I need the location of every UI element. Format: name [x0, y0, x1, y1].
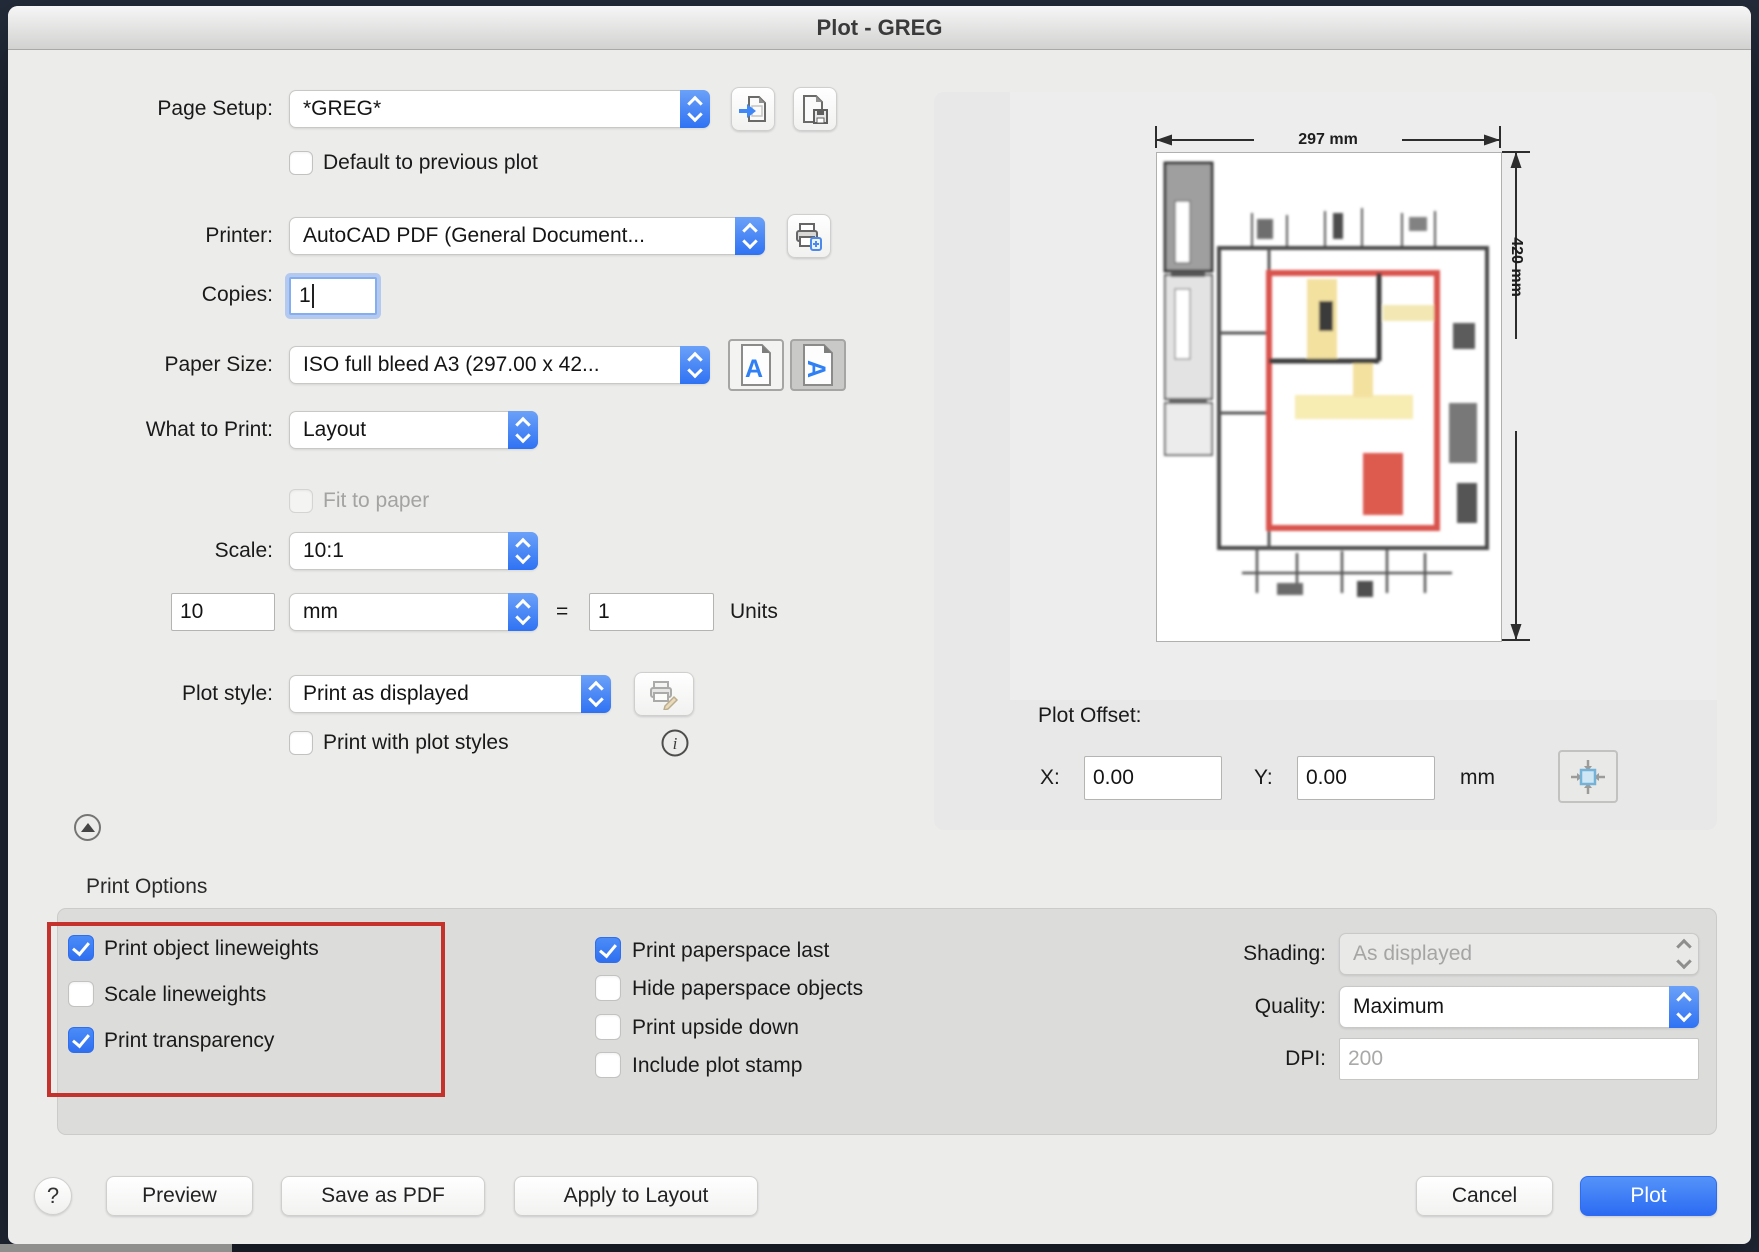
stepper-icon	[508, 532, 538, 570]
dpi-label: DPI:	[1100, 1046, 1326, 1072]
title-bar[interactable]: Plot - GREG	[8, 6, 1751, 50]
units-label: Units	[730, 599, 778, 625]
svg-text:A: A	[802, 360, 830, 378]
print-with-plot-styles-label: Print with plot styles	[323, 730, 509, 756]
fit-to-paper-label: Fit to paper	[323, 488, 429, 514]
offset-x-label: X:	[1040, 765, 1060, 791]
paper-width-dimension: 297 mm	[1258, 130, 1398, 150]
stepper-icon	[581, 675, 611, 713]
plot-offset-label: Plot Offset:	[1038, 703, 1142, 729]
annotation-highlight-box	[47, 922, 445, 1097]
shading-select[interactable]: As displayed	[1339, 933, 1699, 975]
apply-to-layout-button[interactable]: Apply to Layout	[514, 1176, 758, 1216]
plot-style-editor-icon	[648, 678, 680, 710]
save-page-setup-icon	[799, 93, 831, 125]
what-to-print-select[interactable]: Layout	[289, 411, 538, 449]
import-page-icon	[737, 93, 769, 125]
quality-value: Maximum	[1340, 995, 1669, 1019]
copies-label: Copies:	[20, 282, 273, 308]
paper-size-label: Paper Size:	[20, 352, 273, 378]
equals-label: =	[556, 599, 568, 625]
import-page-setup-button[interactable]	[731, 87, 775, 131]
center-plot-button[interactable]	[1558, 750, 1618, 803]
scale-label: Scale:	[20, 538, 273, 564]
stepper-icon	[735, 217, 765, 255]
stepper-icon	[680, 90, 710, 128]
cancel-button-label: Cancel	[1452, 1184, 1517, 1208]
stepper-icon	[1669, 933, 1699, 975]
quality-label: Quality:	[1100, 994, 1326, 1020]
quality-select[interactable]: Maximum	[1339, 986, 1699, 1028]
paper-size-value: ISO full bleed A3 (297.00 x 42...	[290, 353, 680, 377]
plot-button-label: Plot	[1630, 1184, 1666, 1208]
save-page-setup-button[interactable]	[793, 87, 837, 131]
landscape-page-icon: A	[800, 343, 836, 387]
cancel-button[interactable]: Cancel	[1416, 1176, 1553, 1216]
info-icon: i	[660, 728, 690, 758]
scale-drawing-units-input[interactable]	[589, 593, 714, 631]
collapse-options-button[interactable]	[74, 814, 101, 841]
svg-text:A: A	[745, 355, 763, 383]
help-button[interactable]: ?	[34, 1177, 72, 1215]
stepper-icon	[680, 346, 710, 384]
default-to-previous-label: Default to previous plot	[323, 150, 538, 176]
printer-select[interactable]: AutoCAD PDF (General Document...	[289, 217, 765, 255]
background-app-strip	[0, 1244, 232, 1252]
plot-style-value: Print as displayed	[290, 682, 581, 706]
landscape-orientation-button[interactable]: A	[790, 339, 846, 391]
scale-unit-value: mm	[290, 600, 508, 624]
print-paperspace-last-checkbox[interactable]	[595, 937, 621, 963]
window-title: Plot - GREG	[817, 15, 943, 41]
offset-x-input[interactable]	[1084, 756, 1222, 800]
stepper-icon	[508, 593, 538, 631]
page-setup-label: Page Setup:	[20, 96, 273, 122]
triangle-up-icon	[81, 823, 95, 832]
paper-height-dimension: 420 mm	[1506, 225, 1526, 309]
scale-select[interactable]: 10:1	[289, 532, 538, 570]
plot-button[interactable]: Plot	[1580, 1176, 1717, 1216]
text-caret	[312, 284, 314, 308]
printer-properties-button[interactable]	[787, 214, 831, 258]
page-setup-select[interactable]: *GREG*	[289, 90, 710, 128]
portrait-page-icon: A	[738, 343, 774, 387]
print-upside-down-checkbox[interactable]	[595, 1014, 621, 1040]
printer-properties-icon	[793, 220, 825, 252]
plot-style-label: Plot style:	[20, 681, 273, 707]
print-upside-down-label: Print upside down	[632, 1015, 799, 1041]
fit-to-paper-checkbox[interactable]	[289, 489, 313, 513]
print-paperspace-last-label: Print paperspace last	[632, 938, 829, 964]
printer-value: AutoCAD PDF (General Document...	[290, 224, 735, 248]
scale-unit-select[interactable]: mm	[289, 593, 538, 631]
center-plot-icon	[1566, 757, 1610, 797]
plot-style-editor-button[interactable]	[634, 672, 694, 716]
plot-style-select[interactable]: Print as displayed	[289, 675, 611, 713]
apply-to-layout-button-label: Apply to Layout	[564, 1184, 709, 1208]
default-to-previous-checkbox[interactable]	[289, 151, 313, 175]
print-with-plot-styles-checkbox[interactable]	[289, 731, 313, 755]
shading-label: Shading:	[1100, 941, 1326, 967]
svg-text:i: i	[673, 734, 678, 753]
paper-size-select[interactable]: ISO full bleed A3 (297.00 x 42...	[289, 346, 710, 384]
print-options-section-label: Print Options	[86, 875, 207, 899]
dimension-lines	[1140, 118, 1550, 663]
hide-paperspace-objects-label: Hide paperspace objects	[632, 976, 863, 1002]
preview-button-label: Preview	[142, 1184, 217, 1208]
what-to-print-label: What to Print:	[20, 417, 273, 443]
portrait-orientation-button[interactable]: A	[728, 339, 784, 391]
shading-value: As displayed	[1340, 942, 1669, 966]
save-as-pdf-button[interactable]: Save as PDF	[281, 1176, 485, 1216]
stepper-icon	[508, 411, 538, 449]
include-plot-stamp-label: Include plot stamp	[632, 1053, 802, 1079]
include-plot-stamp-checkbox[interactable]	[595, 1052, 621, 1078]
offset-y-input[interactable]	[1297, 756, 1435, 800]
info-button[interactable]: i	[660, 728, 690, 758]
hide-paperspace-objects-checkbox[interactable]	[595, 975, 621, 1001]
copies-input[interactable]	[289, 277, 377, 315]
preview-button[interactable]: Preview	[106, 1176, 253, 1216]
offset-unit-label: mm	[1460, 765, 1495, 791]
save-as-pdf-button-label: Save as PDF	[321, 1184, 445, 1208]
printer-label: Printer:	[20, 223, 273, 249]
offset-y-label: Y:	[1254, 765, 1273, 791]
page-setup-value: *GREG*	[290, 97, 680, 121]
question-mark-icon: ?	[47, 1183, 59, 1209]
what-to-print-value: Layout	[290, 418, 508, 442]
dpi-input[interactable]	[1339, 1038, 1699, 1080]
scale-value: 10:1	[290, 539, 508, 563]
stepper-icon	[1669, 986, 1699, 1028]
scale-paper-units-input[interactable]	[171, 593, 275, 631]
